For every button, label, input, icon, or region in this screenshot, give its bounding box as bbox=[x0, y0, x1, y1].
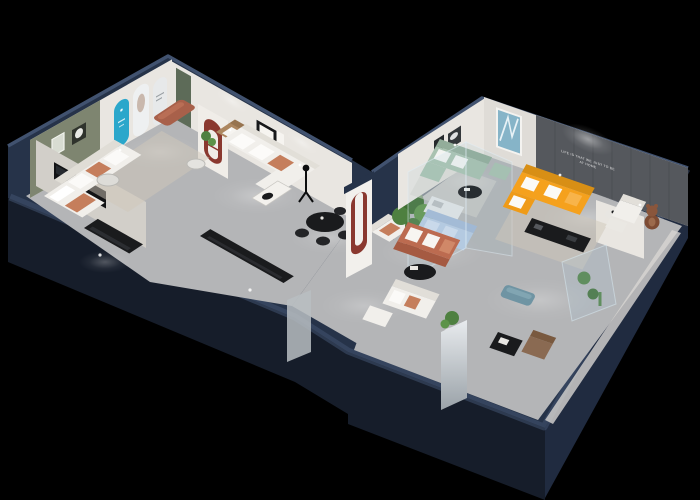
bear-belly bbox=[649, 218, 656, 227]
table-vase bbox=[320, 216, 323, 219]
isometric-floorplan-render: LIFE IS THAT WE JUST TO BE AT HOME bbox=[0, 0, 700, 500]
dining-chair bbox=[295, 229, 309, 238]
table-books bbox=[410, 266, 418, 270]
plant-foliage bbox=[441, 320, 450, 329]
round-side-table bbox=[187, 159, 205, 169]
red-u-arch-partition bbox=[344, 171, 374, 279]
dining-chair bbox=[316, 237, 330, 246]
u-arch-inner bbox=[355, 191, 363, 247]
plant-foliage bbox=[208, 138, 216, 146]
bright-glass-door bbox=[441, 320, 467, 410]
bright-doorway-left bbox=[287, 290, 311, 362]
bear-ear bbox=[646, 204, 650, 208]
black-oval-coffee-table bbox=[404, 264, 436, 280]
dining-chair bbox=[334, 207, 346, 215]
bear-ear bbox=[654, 204, 658, 208]
render-canvas: LIFE IS THAT WE JUST TO BE AT HOME bbox=[0, 0, 700, 500]
black-dining-table bbox=[306, 212, 344, 232]
blue-abstract-art bbox=[498, 110, 520, 154]
round-glass-table bbox=[97, 174, 119, 186]
floor-light-pool bbox=[79, 251, 131, 273]
